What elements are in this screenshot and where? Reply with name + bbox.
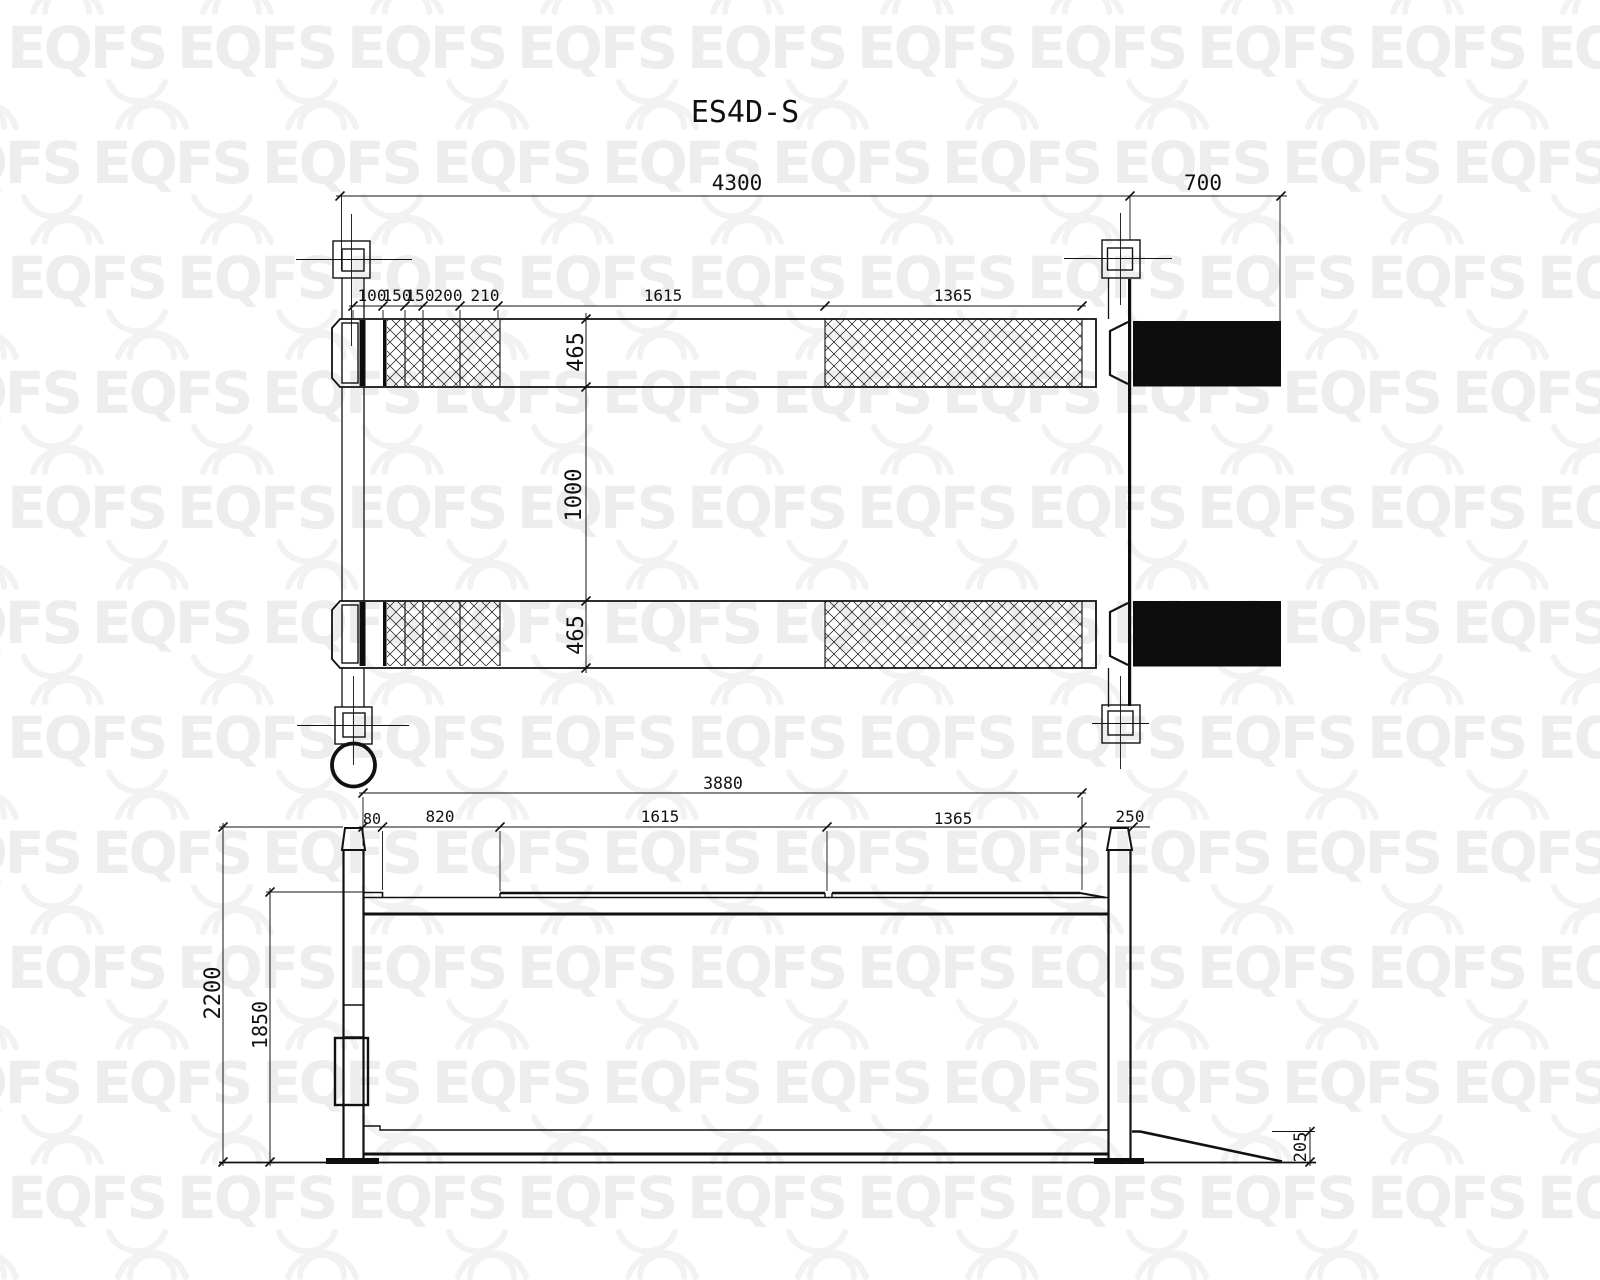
side-post-left xyxy=(326,828,379,1164)
tread-plate-short xyxy=(387,602,500,666)
plan-platform-front xyxy=(332,319,1128,387)
post-bottom-left xyxy=(297,676,409,787)
tread-plate-rear xyxy=(825,320,1082,387)
dim-seg-80: 80 xyxy=(363,810,381,828)
drive-on-ramp-front xyxy=(1133,321,1281,387)
dim-seg-3: 150 xyxy=(406,286,435,305)
dim-seg-1365: 1365 xyxy=(934,809,973,828)
dim-platform-width-front: 465 xyxy=(564,332,589,372)
dim-overall-height: 2200 xyxy=(201,967,226,1020)
side-dimension-lines xyxy=(219,789,1316,1167)
side-post-right xyxy=(1094,828,1144,1164)
dim-platform-width-rear: 465 xyxy=(564,615,589,655)
plan-platform-rear xyxy=(332,601,1128,668)
dim-deck-height: 1850 xyxy=(248,1001,272,1049)
dim-ramp-height: 205 xyxy=(1291,1132,1311,1163)
drive-on-ramp-rear xyxy=(1133,601,1281,667)
dim-seg-4: 200 xyxy=(434,286,463,305)
dim-overall-length: 4300 xyxy=(712,171,763,195)
drawing-title: ES4D-S xyxy=(691,95,799,130)
side-deck xyxy=(364,893,1108,915)
dim-seg-5: 210 xyxy=(471,286,500,305)
tread-plate-short xyxy=(387,320,500,386)
technical-drawing: ES4D-S 4300 700 100 150 150 200 210 1615… xyxy=(0,0,1600,1280)
dim-tread-front: 1615 xyxy=(644,286,683,305)
post-top-right xyxy=(1064,213,1172,305)
ramp-hinge xyxy=(1110,322,1128,384)
dim-tread-rear: 1365 xyxy=(934,286,973,305)
dim-seg-1615: 1615 xyxy=(641,807,680,826)
dim-ramp-length: 700 xyxy=(1184,171,1222,195)
platform-end-roller xyxy=(342,605,358,663)
plan-view: ES4D-S 4300 700 100 150 150 200 210 1615… xyxy=(296,95,1287,787)
dim-deck-length: 3880 xyxy=(703,774,743,793)
tread-plate-rear xyxy=(825,602,1082,668)
post-bottom-right xyxy=(1092,676,1149,769)
ramp-hinge xyxy=(1110,603,1128,665)
dim-post-width: 250 xyxy=(1116,807,1145,826)
dim-seg-820: 820 xyxy=(426,807,455,826)
drawing-sheet: EQFSEQFSEQFSEQFSEQFSEQFSEQFSEQFSEQFSEQFS… xyxy=(0,0,1600,1280)
dim-track-gap: 1000 xyxy=(562,469,587,522)
platform-end-roller xyxy=(342,323,358,383)
approach-ramp xyxy=(1132,1132,1282,1162)
side-bottom-tray xyxy=(364,1126,1108,1154)
side-view: 3880 80 820 1615 1365 250 2200 1850 205 xyxy=(201,774,1316,1167)
